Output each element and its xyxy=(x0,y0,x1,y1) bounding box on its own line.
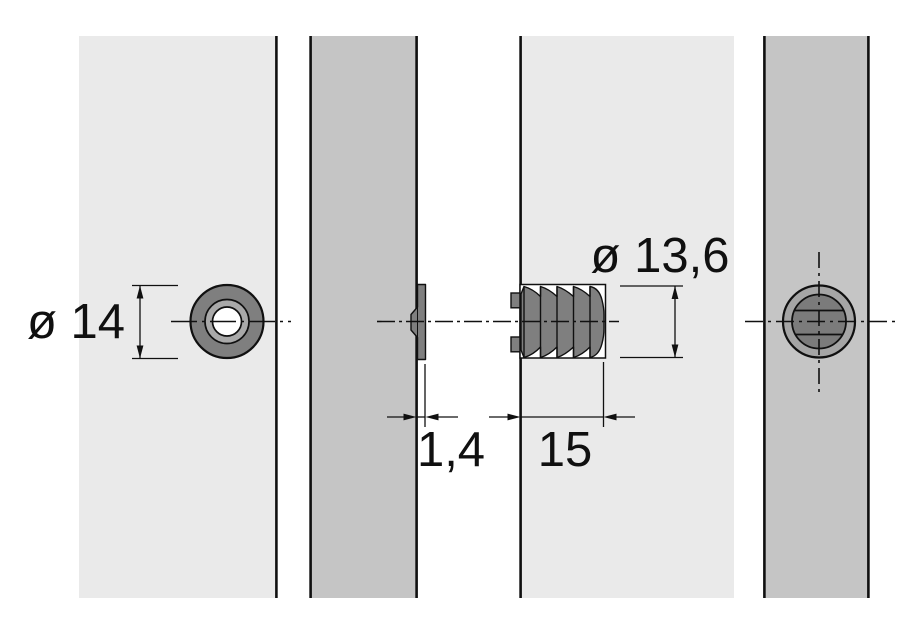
arrowhead-right xyxy=(508,414,521,421)
panel-2-board xyxy=(311,36,417,598)
dim-label-plug-length: 15 xyxy=(538,423,593,477)
panel-2-face xyxy=(311,36,416,598)
plug-flange-tab-top xyxy=(511,293,521,308)
connector-installation-drawing: ø 14 1,4 1 xyxy=(0,0,907,632)
plug-flange-tab-bottom xyxy=(511,337,521,352)
dim-label-plug-diameter: ø 13,6 xyxy=(591,229,730,283)
arrowhead-left xyxy=(426,414,439,421)
dim-label-plate-protrusion: 1,4 xyxy=(417,423,485,477)
dim-label-sleeve-diameter: ø 14 xyxy=(27,295,125,349)
technical-drawing: ø 14 1,4 1 xyxy=(0,0,907,632)
